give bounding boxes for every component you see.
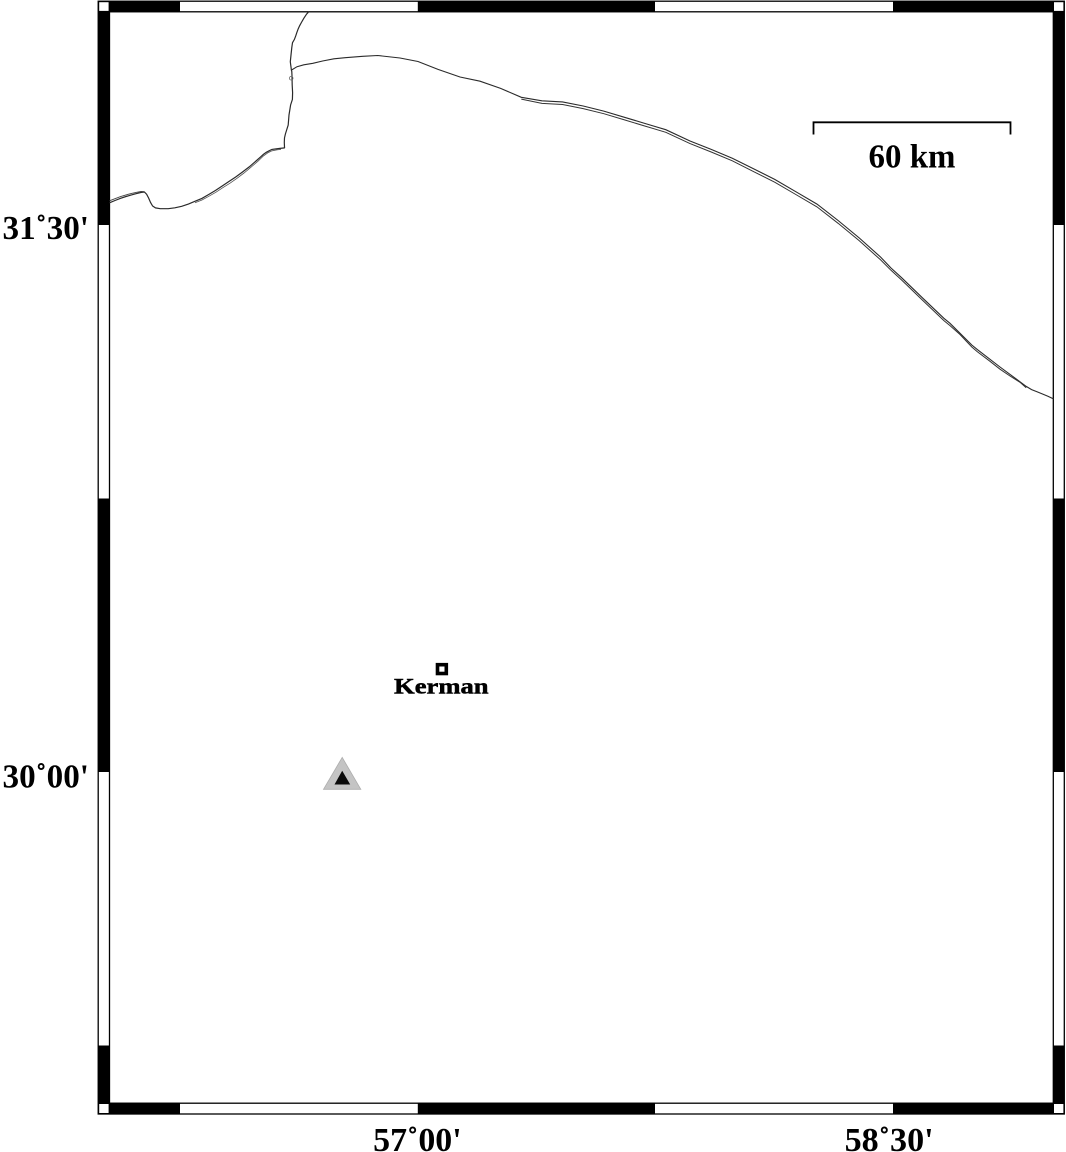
svg-text:31˚30': 31˚30' [3, 210, 90, 247]
svg-text:Kerman: Kerman [394, 673, 489, 698]
svg-text:57˚00': 57˚00' [373, 1122, 462, 1152]
svg-text:30˚00': 30˚00' [3, 759, 90, 796]
svg-text:60 km: 60 km [869, 138, 956, 175]
svg-text:58˚30': 58˚30' [845, 1122, 934, 1152]
